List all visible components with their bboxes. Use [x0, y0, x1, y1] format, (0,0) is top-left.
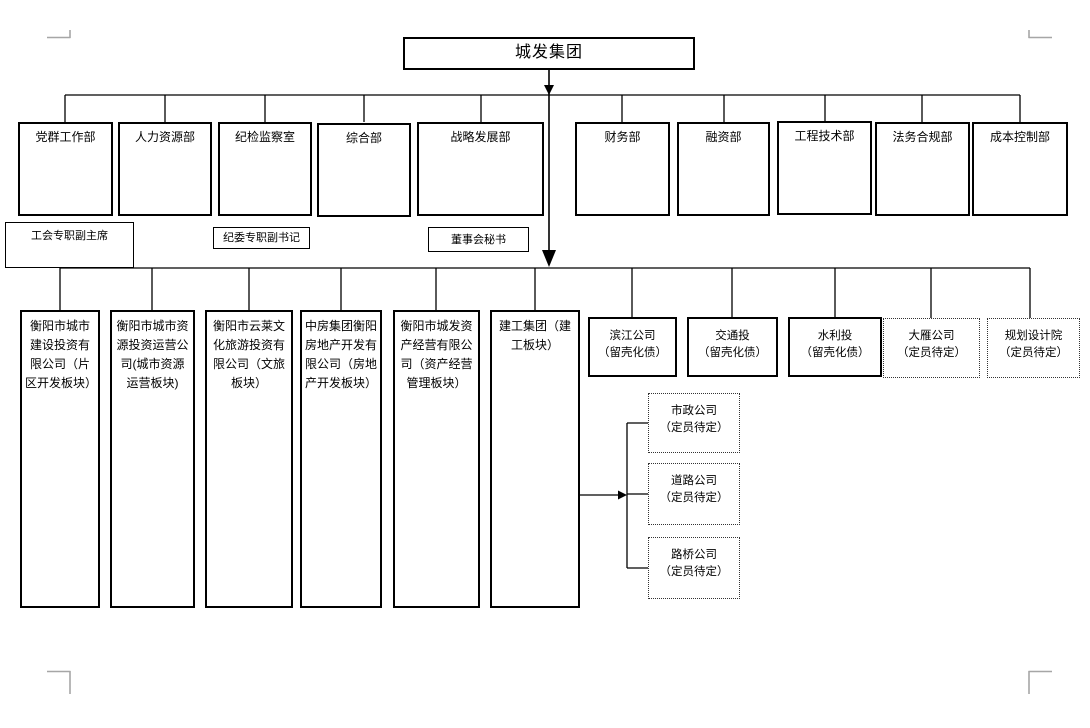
subsidiary-node-urban-construction-investment: 衡阳市城市建设投资有限公司（片区开发板块） — [20, 310, 100, 608]
dept-node-general-office: 综合部 — [317, 123, 411, 217]
dept-node-party-masses: 党群工作部 — [18, 122, 113, 216]
dept-node-legal-compliance: 法务合规部 — [875, 122, 970, 216]
org-root-node: 城发集团 — [403, 37, 695, 70]
subsidiary-node-planning-design-institute: 规划设计院 （定员待定） — [987, 318, 1080, 378]
subsidiary-node-transport-investment: 交通投 （留壳化债） — [687, 317, 778, 377]
subsidiary-node-binjiang-company: 滨江公司 （留壳化债） — [588, 317, 677, 377]
branch-node-road-company: 道路公司 （定员待定） — [648, 463, 740, 525]
branch-node-municipal-company: 市政公司 （定员待定） — [648, 393, 740, 453]
staff-node-board-secretary: 董事会秘书 — [428, 227, 529, 252]
dept-node-engineering-technology: 工程技术部 — [777, 121, 872, 215]
subsidiary-node-water-investment: 水利投 （留壳化债） — [788, 317, 882, 377]
org-chart: 城发集团 党群工作部 人力资源部 纪检监察室 综合部 战略发展部 财务部 融资部… — [0, 0, 1090, 728]
subsidiary-node-chengfa-asset-management: 衡阳市城发资产经营有限公司（资产经营管理板块） — [393, 310, 480, 608]
staff-node-union-vice-chairman: 工会专职副主席 — [5, 222, 134, 268]
subsidiary-node-zhongfang-real-estate: 中房集团衡阳房地产开发有限公司（房地产开发板块） — [300, 310, 382, 608]
staff-label: 纪委专职副书记 — [223, 231, 300, 245]
subsidiary-node-construction-group: 建工集团（建工板块） — [490, 310, 580, 608]
org-root-label: 城发集团 — [515, 44, 583, 61]
department-rail — [65, 95, 1020, 122]
staff-label: 工会专职副主席 — [31, 223, 108, 243]
dept-node-discipline-inspection: 纪检监察室 — [218, 122, 312, 216]
subsidiary-node-urban-resources-investment: 衡阳市城市资源投资运营公司(城市资源运营板块) — [110, 310, 195, 608]
dept-node-cost-control: 成本控制部 — [972, 122, 1068, 216]
subsidiary-node-dayan-company: 大雁公司 （定员待定） — [883, 318, 980, 378]
dept-node-finance: 财务部 — [575, 122, 670, 216]
dept-node-human-resources: 人力资源部 — [118, 122, 212, 216]
staff-label: 董事会秘书 — [451, 233, 506, 247]
construction-branch-lines — [580, 423, 648, 568]
arrowhead-large-down — [542, 250, 556, 267]
staff-node-discipline-vice-secretary: 纪委专职副书记 — [213, 227, 310, 249]
subsidiary-node-yunlai-culture-tourism: 衡阳市云莱文化旅游投资有限公司（文旅板块） — [205, 310, 293, 608]
dept-node-financing: 融资部 — [677, 122, 770, 216]
branch-node-road-bridge-company: 路桥公司 （定员待定） — [648, 537, 740, 599]
dept-node-strategy-development: 战略发展部 — [417, 122, 544, 216]
arrowhead-small-down — [544, 85, 554, 95]
arrowhead-right — [618, 491, 627, 500]
